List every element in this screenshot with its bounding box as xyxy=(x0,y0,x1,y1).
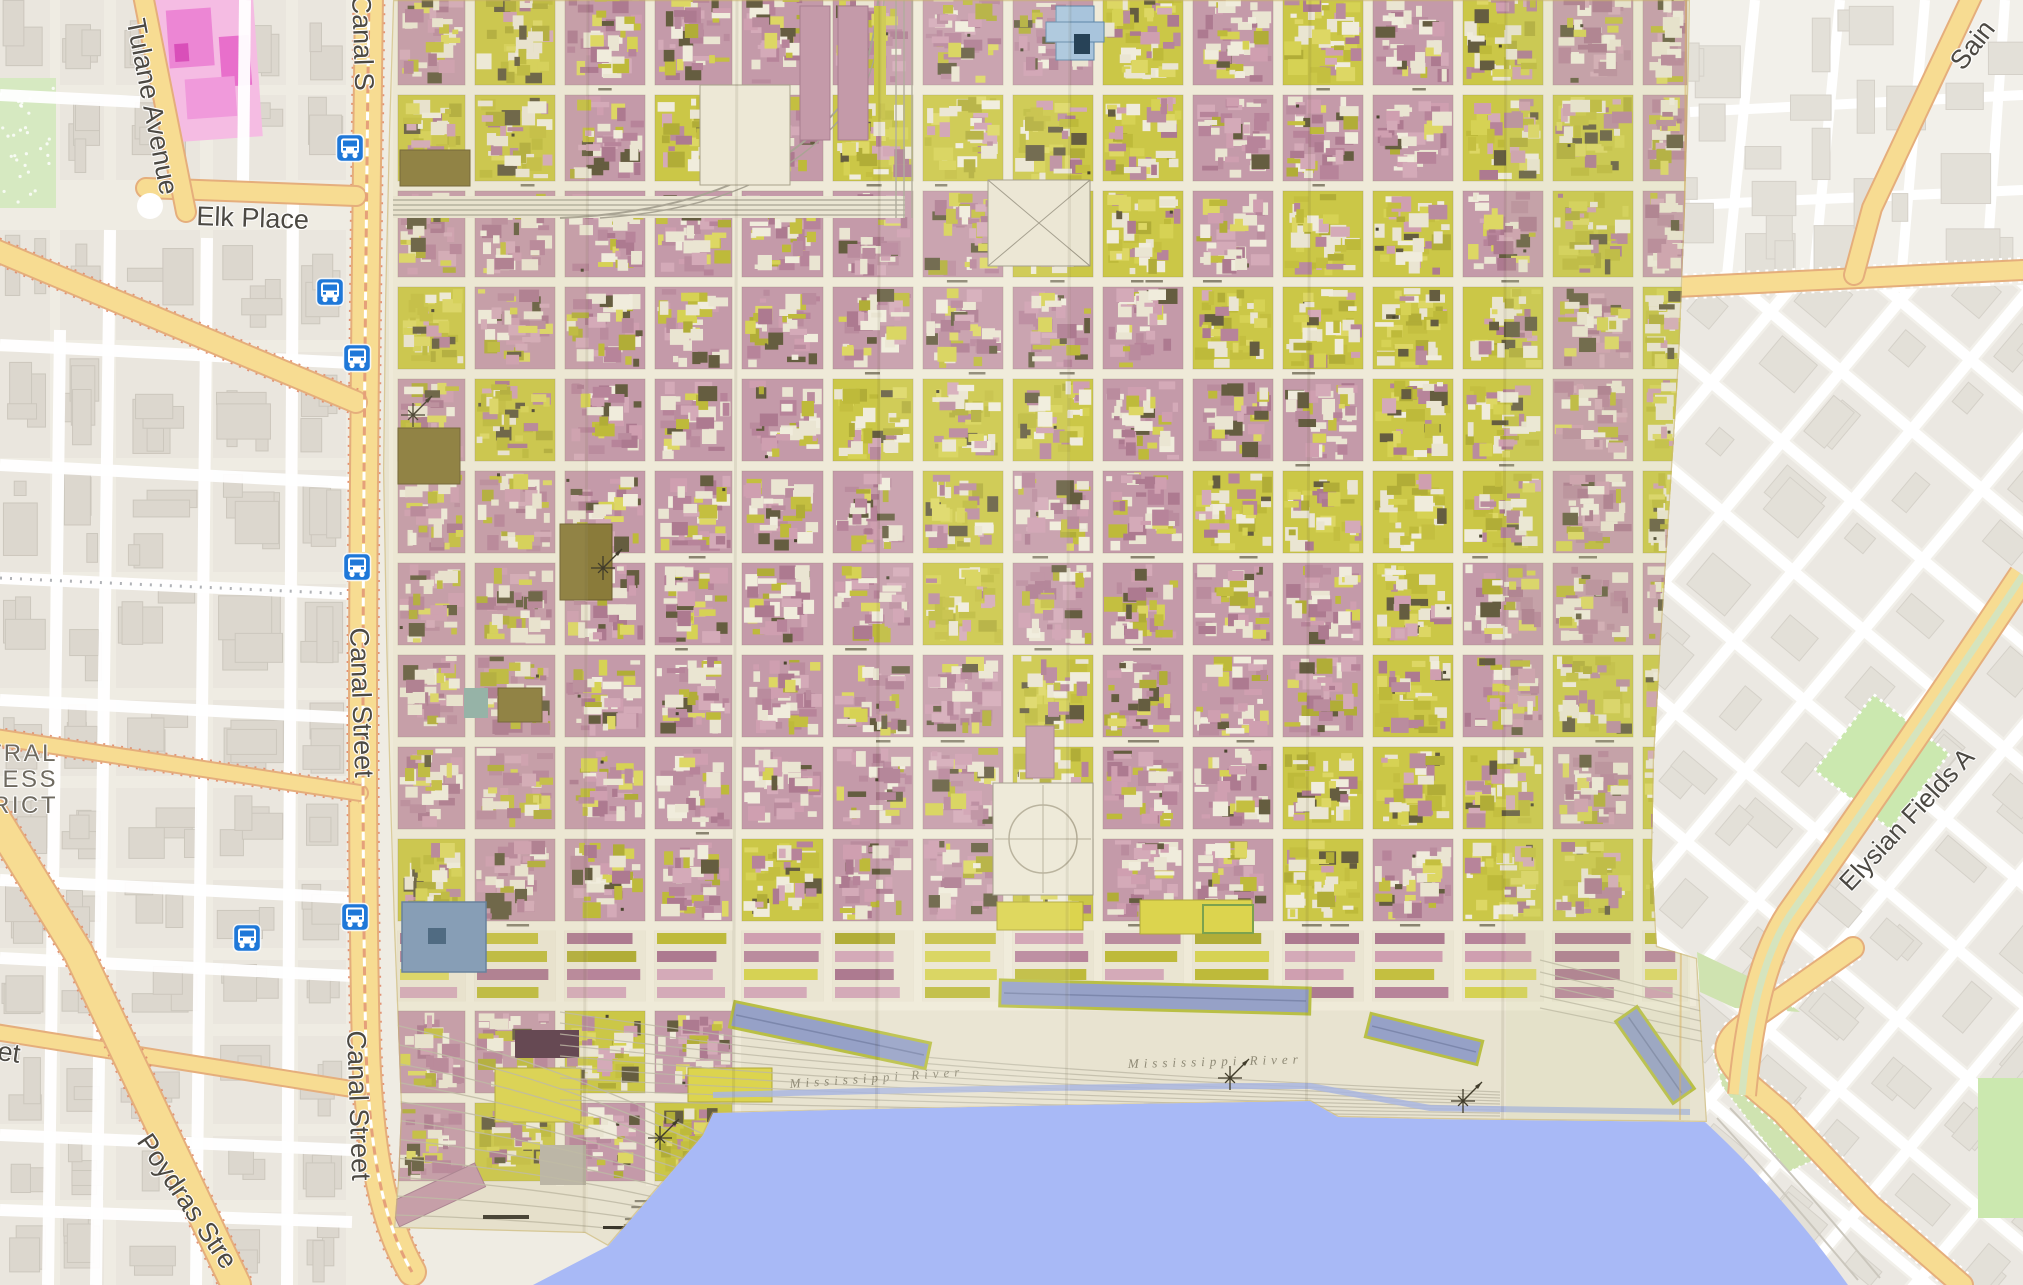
map-shape xyxy=(842,347,854,356)
map-shape xyxy=(842,566,852,575)
map-shape xyxy=(1791,95,1832,120)
map-shape xyxy=(692,63,703,70)
map-shape xyxy=(1499,45,1502,48)
map-shape xyxy=(1343,115,1357,129)
map-shape xyxy=(1135,569,1147,581)
map-shape xyxy=(806,522,818,532)
map-shape xyxy=(625,356,631,364)
map-shape xyxy=(610,479,621,484)
map-shape xyxy=(758,533,769,544)
map-shape xyxy=(600,327,608,339)
map-shape xyxy=(1321,289,1333,296)
map-shape xyxy=(174,43,189,62)
map-shape xyxy=(1479,535,1482,538)
map-shape xyxy=(1351,48,1362,61)
map-shape xyxy=(1440,133,1446,148)
map-shape xyxy=(1079,524,1086,529)
map-shape xyxy=(1075,338,1089,345)
map-shape xyxy=(1316,237,1327,247)
map-shape xyxy=(1116,288,1134,302)
map-shape xyxy=(166,7,215,68)
map-shape xyxy=(1107,105,1117,110)
map-shape xyxy=(3,718,14,732)
map-shape xyxy=(782,387,793,397)
map-shape xyxy=(1243,41,1250,50)
map-shape xyxy=(1257,225,1264,232)
map-shape xyxy=(15,158,18,161)
map-shape xyxy=(1334,527,1341,541)
map-shape xyxy=(1297,392,1308,408)
map-shape xyxy=(676,136,692,145)
map-shape xyxy=(1234,620,1245,629)
map-shape xyxy=(1475,9,1489,23)
map-shape xyxy=(1230,224,1245,231)
map-shape xyxy=(1148,259,1157,274)
map-shape xyxy=(67,1224,93,1262)
map-shape xyxy=(129,828,164,859)
map-shape xyxy=(760,627,769,634)
map-shape xyxy=(1382,40,1389,46)
map-shape xyxy=(1291,361,1304,366)
map-shape xyxy=(661,263,674,272)
map-shape xyxy=(0,95,140,102)
map-shape xyxy=(39,147,42,150)
map-shape xyxy=(1426,355,1442,360)
map-shape xyxy=(690,436,700,447)
map-shape xyxy=(1138,449,1149,460)
map-shape xyxy=(1323,214,1339,223)
map-shape xyxy=(716,536,725,544)
map-shape xyxy=(1398,348,1408,356)
map-shape xyxy=(710,568,728,584)
map-shape xyxy=(699,609,715,616)
map-shape xyxy=(6,976,43,1012)
map-shape xyxy=(1159,381,1175,389)
map-shape xyxy=(1380,433,1393,442)
map-shape xyxy=(804,334,818,342)
map-shape xyxy=(1386,570,1406,575)
map-shape xyxy=(1328,254,1344,261)
map-shape xyxy=(1079,537,1090,551)
map-shape xyxy=(1284,41,1301,55)
map-shape xyxy=(593,504,611,514)
map-shape xyxy=(1163,339,1171,351)
map-shape xyxy=(1395,344,1414,349)
map-shape xyxy=(1344,2,1361,12)
map-shape xyxy=(783,634,793,643)
map-shape xyxy=(1397,45,1415,61)
map-shape xyxy=(1474,263,1484,269)
map-shape xyxy=(1155,477,1166,489)
map-shape xyxy=(864,528,872,534)
map-shape xyxy=(1256,605,1263,612)
map-shape xyxy=(1111,541,1121,551)
map-shape xyxy=(1310,127,1324,134)
map-shape xyxy=(751,60,760,70)
map-shape xyxy=(681,293,699,302)
map-shape xyxy=(1335,339,1344,354)
map-shape xyxy=(19,129,22,132)
map-shape xyxy=(220,830,243,856)
map-shape xyxy=(1290,14,1296,18)
map-shape xyxy=(1202,166,1218,171)
map-shape xyxy=(666,231,685,242)
map-shape xyxy=(704,269,714,275)
map-shape xyxy=(1487,24,1504,37)
map-shape xyxy=(1480,602,1500,617)
map-shape xyxy=(1437,382,1443,386)
map-shape xyxy=(1254,299,1265,311)
map-shape xyxy=(1288,59,1308,75)
map-shape xyxy=(1237,412,1244,422)
map-shape xyxy=(1107,0,1123,8)
map-shape xyxy=(1248,17,1256,23)
map-shape xyxy=(1431,320,1439,327)
map-shape xyxy=(1415,351,1427,365)
map-shape xyxy=(1227,383,1243,396)
map-shape xyxy=(1436,306,1443,311)
map-shape xyxy=(1218,293,1226,303)
map-shape xyxy=(599,218,613,228)
map-shape xyxy=(1290,151,1304,158)
map-shape xyxy=(664,50,675,62)
map-shape xyxy=(696,417,714,428)
map-shape xyxy=(1231,18,1242,24)
map-shape xyxy=(1130,148,1144,156)
map-shape xyxy=(757,568,774,576)
map-shape xyxy=(1114,406,1120,416)
map-shape xyxy=(1469,41,1478,51)
map-shape xyxy=(1415,496,1434,512)
map-shape xyxy=(1198,626,1215,634)
map-shape xyxy=(1154,614,1163,626)
map-shape xyxy=(1441,224,1450,230)
map-shape xyxy=(837,521,848,531)
map-shape xyxy=(677,611,690,626)
map-shape xyxy=(763,499,773,504)
map-shape xyxy=(1381,340,1391,347)
map-shape xyxy=(1377,564,1385,574)
map-shape xyxy=(624,397,629,413)
map-shape xyxy=(1340,106,1359,116)
map-shape xyxy=(692,253,707,265)
map-shape xyxy=(658,102,675,112)
map-shape xyxy=(1084,318,1090,333)
map-shape xyxy=(809,256,820,270)
map-shape xyxy=(1229,70,1235,75)
map-shape xyxy=(1411,63,1425,74)
map-shape xyxy=(587,407,604,415)
map-shape xyxy=(70,630,99,656)
map-shape xyxy=(1393,447,1407,454)
map-shape xyxy=(1150,314,1158,326)
map-shape xyxy=(1333,321,1339,333)
map-shape xyxy=(1317,329,1322,341)
map-shape xyxy=(25,152,28,155)
map-shape xyxy=(1745,147,1781,169)
map-shape xyxy=(1376,352,1395,357)
map-shape xyxy=(603,74,622,78)
map-shape xyxy=(1147,51,1152,58)
map-shape xyxy=(869,394,878,398)
map-shape xyxy=(659,637,676,643)
map-shape xyxy=(64,473,90,525)
map-shape xyxy=(75,139,86,173)
map-shape xyxy=(1208,480,1213,485)
map-shape xyxy=(1311,591,1330,596)
map-shape xyxy=(699,505,718,519)
map-shape xyxy=(1432,22,1444,37)
map-shape xyxy=(1173,403,1178,412)
map-shape xyxy=(1484,257,1496,264)
map-shape xyxy=(613,130,622,138)
map-shape xyxy=(1077,481,1089,490)
map-shape xyxy=(1326,264,1345,270)
map-canvas[interactable]: Mississippi River Mississippi River Tula… xyxy=(0,0,2023,1285)
map-shape xyxy=(1437,591,1445,601)
historic-map-overlay: Mississippi River Mississippi River xyxy=(383,0,1713,1285)
map-shape xyxy=(1084,308,1091,313)
map-shape xyxy=(796,505,805,519)
map-shape xyxy=(163,249,193,305)
map-shape xyxy=(1199,514,1206,521)
map-shape xyxy=(1105,23,1115,37)
map-shape xyxy=(1480,46,1492,55)
map-shape xyxy=(1471,36,1485,42)
map-shape xyxy=(1329,355,1345,364)
map-shape xyxy=(626,232,636,243)
map-shape xyxy=(1140,326,1150,331)
map-shape xyxy=(676,241,683,250)
map-shape xyxy=(1295,19,1304,24)
map-shape xyxy=(1168,493,1180,505)
map-shape xyxy=(1083,408,1090,416)
map-shape xyxy=(1242,528,1247,536)
map-shape xyxy=(834,596,841,608)
map-shape xyxy=(1123,0,1128,10)
map-shape xyxy=(847,244,859,258)
map-shape xyxy=(599,417,608,426)
map-shape xyxy=(1215,307,1229,316)
map-shape xyxy=(1075,573,1084,588)
map-shape xyxy=(1340,97,1346,108)
map-shape xyxy=(1435,604,1452,617)
map-shape xyxy=(1153,48,1164,60)
map-shape xyxy=(166,895,183,928)
map-shape xyxy=(1484,628,1503,634)
map-shape xyxy=(609,406,623,421)
map-shape xyxy=(620,477,634,488)
map-shape xyxy=(1336,67,1355,81)
map-shape xyxy=(763,594,769,599)
map-shape xyxy=(634,163,640,175)
map-shape xyxy=(1401,389,1411,399)
map-shape xyxy=(1752,181,1796,215)
map-shape xyxy=(708,355,719,368)
map-shape xyxy=(1335,596,1341,604)
map-shape xyxy=(1375,246,1384,251)
map-shape xyxy=(1341,634,1353,638)
map-shape xyxy=(677,59,684,70)
map-shape xyxy=(14,481,26,495)
map-shape xyxy=(666,574,675,587)
map-shape xyxy=(2,190,5,193)
map-shape xyxy=(1156,529,1175,534)
map-shape xyxy=(1122,430,1136,438)
map-shape xyxy=(1988,42,2023,74)
map-shape xyxy=(1263,202,1268,214)
map-shape xyxy=(760,298,766,302)
map-shape xyxy=(864,348,872,356)
map-shape xyxy=(1134,421,1152,431)
map-shape xyxy=(1398,157,1414,162)
map-shape xyxy=(1217,30,1227,36)
map-shape xyxy=(688,540,706,545)
map-shape xyxy=(1162,412,1173,422)
map-shape xyxy=(607,233,615,238)
map-shape xyxy=(1492,580,1503,585)
map-shape xyxy=(1116,254,1121,260)
map-shape xyxy=(47,162,50,165)
map-shape xyxy=(1432,112,1452,126)
map-shape xyxy=(310,817,331,842)
map-shape xyxy=(851,441,863,455)
map-shape xyxy=(1323,483,1339,492)
map-shape xyxy=(1250,342,1260,356)
map-shape xyxy=(137,193,163,219)
map-shape xyxy=(1812,128,1830,179)
map-shape xyxy=(1140,521,1151,525)
map-shape xyxy=(1466,67,1471,79)
map-shape xyxy=(618,259,629,270)
map-shape xyxy=(1487,129,1494,144)
map-shape xyxy=(1120,54,1131,63)
map-shape xyxy=(1106,13,1112,24)
map-shape xyxy=(1336,3,1346,19)
map-shape xyxy=(628,49,636,56)
map-shape xyxy=(1163,42,1174,49)
map-shape xyxy=(1287,121,1305,125)
map-shape xyxy=(1293,315,1309,322)
map-shape xyxy=(1387,246,1395,254)
map-shape xyxy=(672,522,688,535)
map-shape xyxy=(784,605,800,619)
map-shape xyxy=(1681,203,1713,243)
map-shape xyxy=(1242,442,1258,457)
map-shape xyxy=(1123,9,1130,23)
map-shape xyxy=(24,1058,41,1104)
map-shape xyxy=(1348,306,1357,311)
map-shape xyxy=(1472,620,1481,634)
map-shape xyxy=(1331,227,1350,237)
map-shape xyxy=(863,428,872,443)
map-shape xyxy=(185,76,238,119)
map-shape xyxy=(1482,404,1491,420)
map-shape xyxy=(1406,321,1422,325)
map-shape xyxy=(752,79,771,83)
map-shape xyxy=(785,294,800,310)
map-shape xyxy=(637,625,643,639)
map-shape xyxy=(1432,444,1448,456)
map-shape xyxy=(1155,630,1172,638)
map-shape xyxy=(747,586,758,597)
map-shape xyxy=(1207,418,1217,423)
map-shape xyxy=(619,162,633,173)
map-shape xyxy=(1253,99,1266,103)
map-shape xyxy=(1335,245,1346,252)
map-shape xyxy=(1206,15,1213,30)
map-shape xyxy=(668,445,679,449)
map-shape xyxy=(782,40,790,48)
map-shape xyxy=(1071,133,1086,145)
map-shape xyxy=(16,200,19,203)
map-shape xyxy=(1070,107,1087,111)
map-shape xyxy=(595,241,608,246)
map-shape xyxy=(1338,388,1353,394)
map-shape xyxy=(1250,75,1263,82)
map-shape xyxy=(317,607,333,663)
map-shape xyxy=(3,0,24,46)
map-shape xyxy=(1377,615,1387,627)
map-shape xyxy=(1221,329,1239,341)
map-shape xyxy=(788,314,806,319)
map-shape xyxy=(1213,475,1221,488)
map-shape xyxy=(301,418,322,451)
map-shape xyxy=(790,329,807,335)
map-shape xyxy=(1327,157,1336,162)
map-shape xyxy=(1285,261,1299,268)
map-shape xyxy=(1125,629,1139,639)
map-shape xyxy=(1148,289,1166,300)
map-shape xyxy=(782,598,802,607)
map-shape xyxy=(1320,165,1339,179)
map-shape xyxy=(673,356,678,362)
map-shape xyxy=(1477,195,1489,201)
map-shape xyxy=(217,404,271,439)
map-shape xyxy=(1892,194,1908,222)
map-shape xyxy=(1160,199,1178,206)
map-shape xyxy=(613,294,633,309)
map-shape xyxy=(1403,162,1418,178)
base-map-svg: Mississippi River Mississippi River xyxy=(0,0,2023,1285)
map-shape xyxy=(1310,67,1326,73)
map-shape xyxy=(1254,31,1269,44)
map-shape xyxy=(618,173,630,178)
map-shape xyxy=(1483,486,1503,494)
map-shape xyxy=(708,297,728,306)
map-shape xyxy=(1437,508,1447,524)
map-shape xyxy=(789,320,797,330)
map-shape xyxy=(661,539,670,550)
map-shape xyxy=(608,35,619,51)
map-shape xyxy=(1399,604,1409,620)
map-shape xyxy=(235,633,282,662)
map-shape xyxy=(1428,205,1447,220)
map-shape xyxy=(858,578,877,583)
map-shape xyxy=(859,154,877,166)
map-shape xyxy=(852,513,861,525)
map-shape xyxy=(1261,501,1271,507)
map-shape xyxy=(1395,522,1401,528)
map-shape xyxy=(1479,443,1492,456)
map-shape xyxy=(1432,268,1440,275)
map-shape xyxy=(1130,268,1136,274)
map-shape xyxy=(1250,2,1257,10)
map-shape xyxy=(1253,434,1261,441)
map-shape xyxy=(1431,489,1444,494)
map-shape xyxy=(1221,441,1236,452)
map-shape xyxy=(1219,490,1229,503)
